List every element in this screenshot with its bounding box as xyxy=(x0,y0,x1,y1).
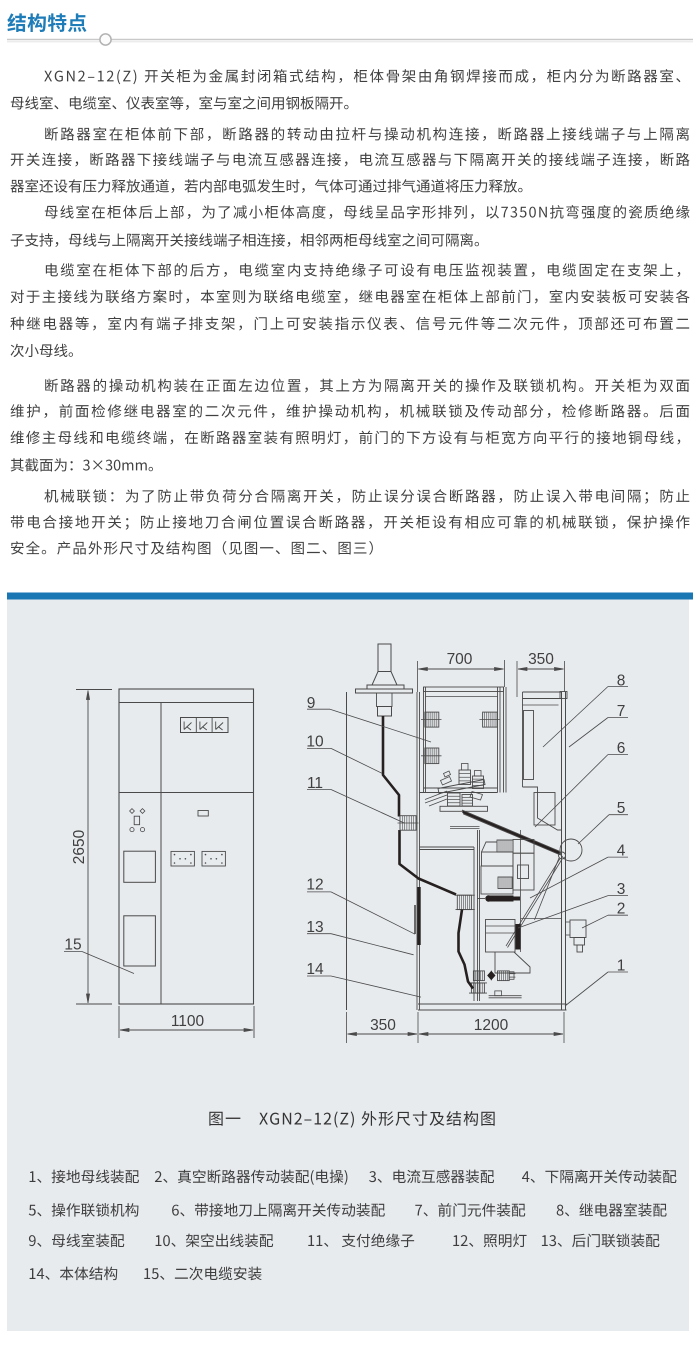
svg-text:350: 350 xyxy=(370,1017,396,1034)
svg-text:350: 350 xyxy=(528,651,554,668)
svg-text:700: 700 xyxy=(447,651,473,668)
svg-text:12: 12 xyxy=(306,876,323,893)
svg-text:13: 13 xyxy=(306,919,323,936)
svg-text:1200: 1200 xyxy=(474,1017,509,1034)
svg-text:1100: 1100 xyxy=(171,1013,205,1030)
svg-text:8: 8 xyxy=(617,673,626,690)
svg-text:2650: 2650 xyxy=(71,829,88,864)
svg-text:15: 15 xyxy=(64,937,81,954)
